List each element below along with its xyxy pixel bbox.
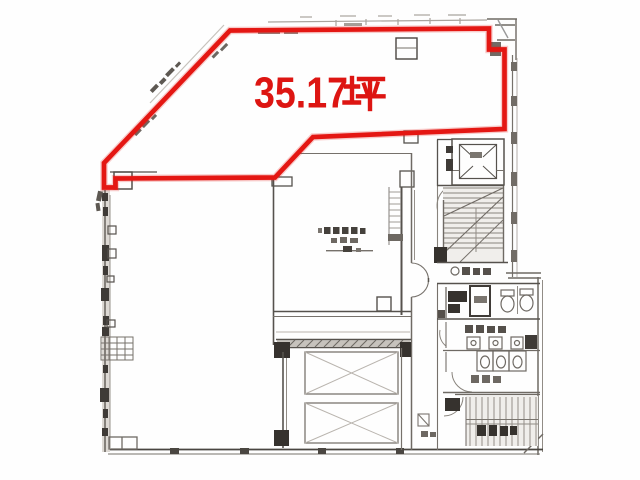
svg-text:35.17: 35.17 xyxy=(254,70,348,118)
